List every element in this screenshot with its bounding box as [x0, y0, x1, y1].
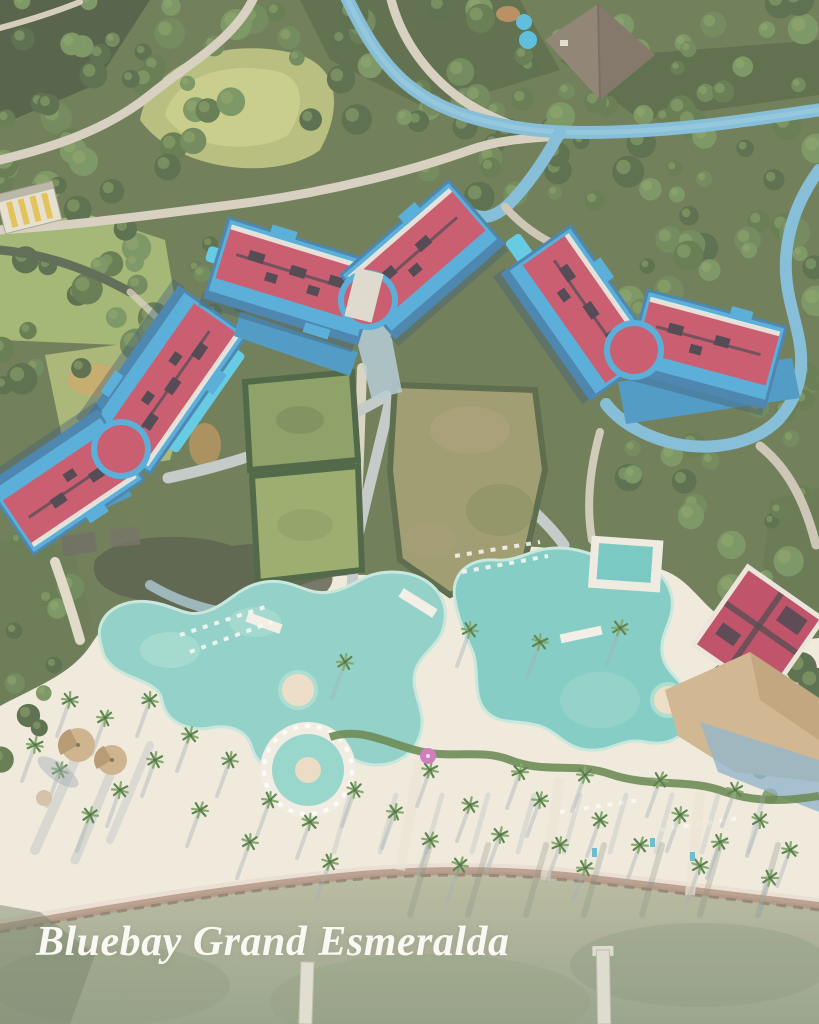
resort-name-caption: Bluebay Grand Esmeralda — [36, 918, 510, 966]
aerial-photo-svg — [0, 0, 819, 1024]
aerial-photo: Bluebay Grand Esmeralda — [0, 0, 819, 1024]
